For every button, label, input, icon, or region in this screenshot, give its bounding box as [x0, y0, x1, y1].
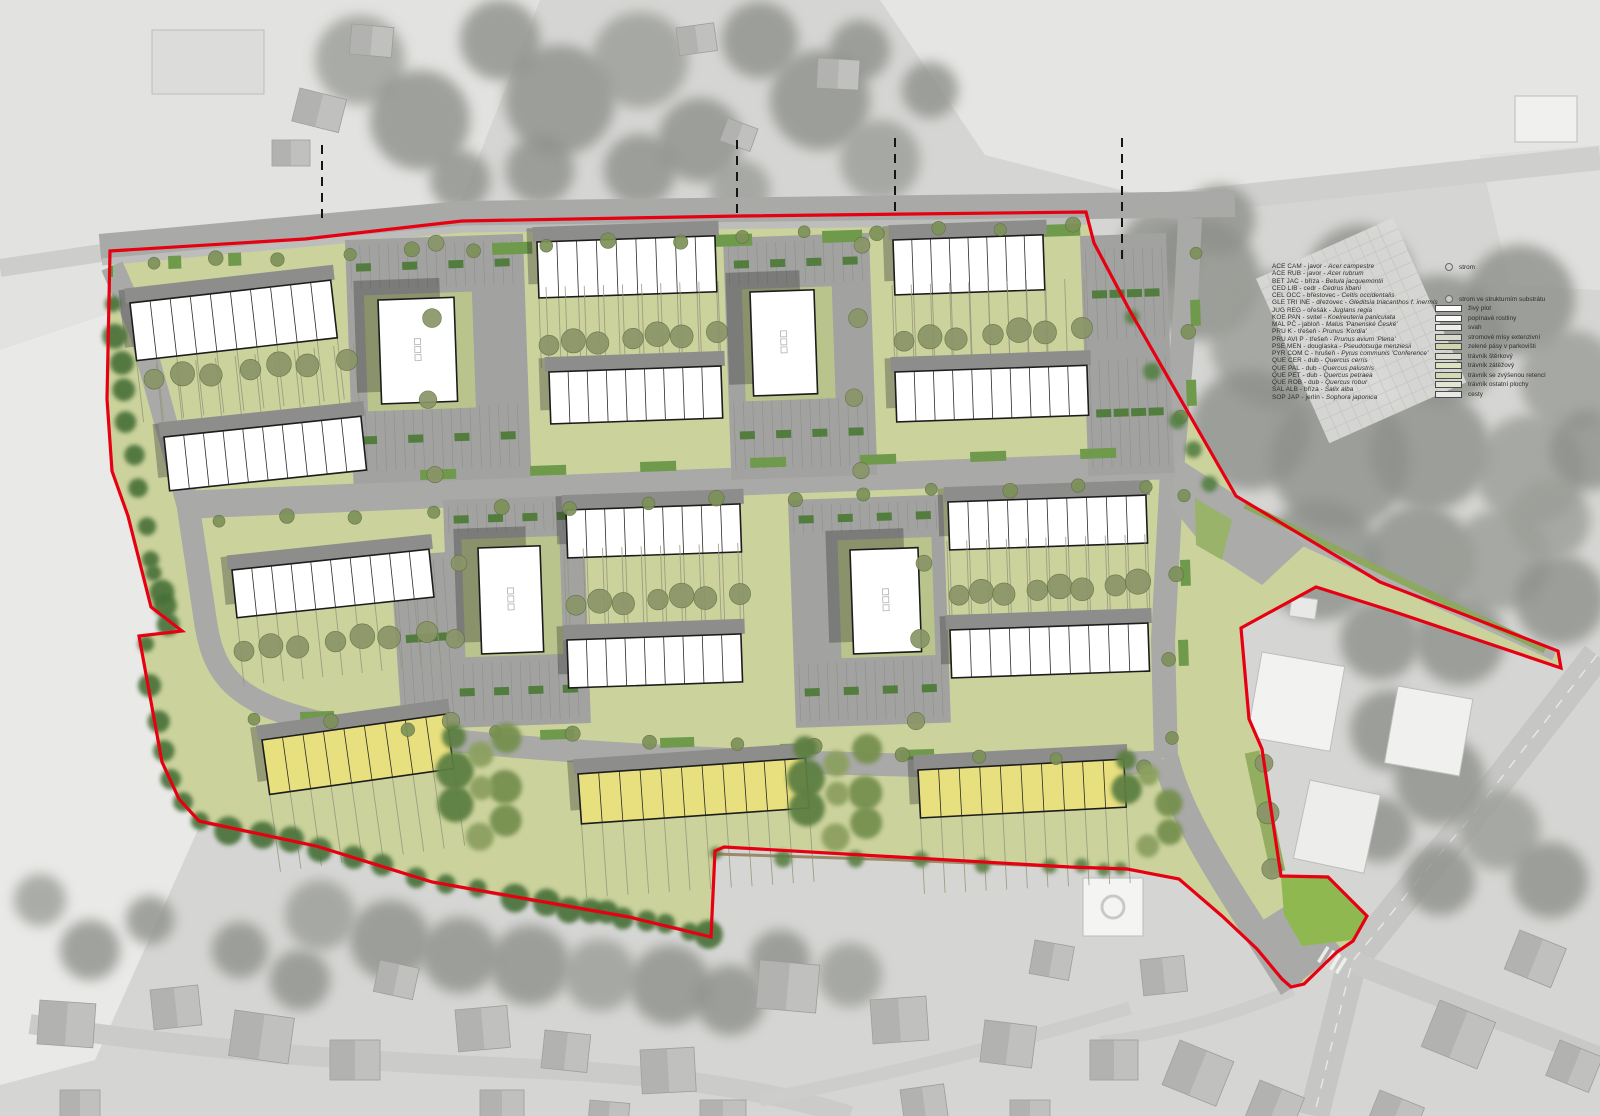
tree	[494, 500, 509, 515]
tree	[669, 583, 694, 608]
hedge-tree	[774, 850, 791, 867]
legend-surface-label: stromové mísy extenzivní	[1468, 334, 1540, 341]
tree	[994, 224, 1006, 236]
tree	[586, 332, 608, 354]
tree	[271, 253, 285, 267]
tree	[325, 631, 346, 652]
legend-plant-row: BET JAC - bříza - Betula jacquemontii	[1272, 278, 1592, 285]
tree	[1071, 317, 1092, 338]
tree	[1166, 732, 1179, 745]
tree	[563, 502, 577, 516]
tree	[1071, 479, 1085, 493]
tree	[427, 466, 443, 482]
tree	[213, 515, 225, 527]
parking-green-bar	[640, 461, 676, 472]
aerial-tree-blob	[285, 880, 355, 950]
tree	[945, 328, 967, 350]
legend-swatch	[1435, 305, 1462, 312]
shrub	[825, 782, 849, 806]
legend-swatch	[1435, 324, 1462, 331]
tree	[540, 239, 553, 252]
parking-court	[1080, 233, 1174, 476]
legend-plant-row: QUE CER - dub - Quercus cerris	[1272, 357, 1592, 364]
hedge-tree	[146, 565, 162, 581]
tree	[642, 497, 655, 510]
tree	[911, 629, 930, 648]
legend-surface-label: trávník se zvýšenou retencí	[1468, 372, 1546, 379]
shrub	[1157, 819, 1183, 845]
legend-surface-row: zelené pásy v parkovišti	[1435, 343, 1536, 350]
legend-plant-row: ACE CAM - javor - Acer campestre	[1272, 263, 1592, 270]
tree	[286, 636, 308, 658]
legend-plant-row: SAL ALB - bříza - Salix alba	[1272, 386, 1592, 393]
aerial-building	[1515, 96, 1577, 142]
aerial-house	[870, 996, 929, 1044]
tree	[144, 369, 164, 389]
legend-surface-row: stromové mísy extenzivní	[1435, 334, 1540, 341]
shrub	[789, 790, 825, 826]
tree	[324, 714, 339, 729]
legend-tree-icon	[1445, 263, 1453, 271]
tree	[296, 354, 319, 377]
tree	[731, 738, 744, 751]
tree	[588, 589, 612, 613]
tree	[248, 713, 260, 725]
aerial-building	[1384, 686, 1472, 776]
building-footprint	[549, 366, 723, 424]
hedge-tree	[1201, 476, 1217, 492]
aerial-building	[152, 30, 264, 94]
legend: ACE CAM - javor - Acer campestreACE RUB …	[1272, 263, 1592, 401]
legend-plant-row: PRU AVI P - třešeň - Prunus avium 'Plena…	[1272, 336, 1592, 343]
hedge-tree	[110, 351, 134, 375]
tree	[1065, 217, 1080, 232]
legend-plant-row: CED LIB - cedr - Cedrus libani	[1272, 285, 1592, 292]
parking-green-bar	[1178, 640, 1189, 666]
tree	[645, 322, 670, 347]
tree	[240, 359, 261, 380]
legend-surface-row: strom	[1435, 263, 1475, 271]
legend-swatch	[1435, 353, 1462, 360]
shrub	[1136, 835, 1159, 858]
legend-plant-list: ACE CAM - javor - Acer campestreACE RUB …	[1272, 263, 1592, 401]
tree	[1003, 483, 1018, 498]
shrub	[850, 807, 882, 839]
tree	[918, 325, 942, 349]
legend-swatch	[1435, 372, 1462, 379]
tree	[1034, 321, 1057, 344]
aerial-tree-blob	[564, 939, 636, 1011]
aerial-house	[700, 1100, 746, 1116]
aerial-house	[816, 58, 860, 90]
aerial-tree-blob	[1510, 480, 1590, 560]
hedge-tree	[112, 378, 135, 401]
aerial-house	[541, 1030, 591, 1073]
tree	[401, 723, 415, 737]
tree	[416, 621, 437, 642]
legend-surface-label: trávník štěrkový	[1468, 353, 1513, 360]
aerial-house	[676, 23, 718, 56]
tree	[674, 235, 688, 249]
tree	[798, 226, 810, 238]
shrub	[824, 751, 850, 777]
legend-tree-icon	[1445, 295, 1453, 303]
tree	[993, 583, 1015, 605]
shrub	[1138, 764, 1160, 786]
shrub	[490, 805, 522, 837]
shrub	[438, 786, 474, 822]
tree	[925, 483, 937, 495]
aerial-tree-blob	[60, 920, 120, 980]
tree	[419, 391, 437, 409]
building-footprint	[537, 236, 717, 298]
hedge-tree	[138, 517, 156, 535]
legend-surface-label: strom	[1459, 264, 1475, 271]
aerial-house	[1090, 1040, 1138, 1080]
shrub	[848, 776, 882, 810]
tree	[932, 221, 946, 235]
legend-plant-row: JUG REG - ořešák - Juglans regia	[1272, 307, 1592, 314]
legend-surface-row: trávník zátěžový	[1435, 362, 1514, 369]
hedge-tree	[1169, 412, 1186, 429]
tree	[857, 488, 870, 501]
tree	[404, 242, 419, 257]
tree	[350, 624, 375, 649]
parking-green-bar	[750, 457, 786, 468]
parking-green-bar	[228, 253, 241, 266]
legend-surface-row: svah	[1435, 324, 1482, 331]
legend-surface-row: živý plot	[1435, 305, 1491, 312]
tree	[973, 750, 986, 763]
tree	[894, 331, 914, 351]
shrub	[1116, 750, 1136, 770]
tree	[200, 364, 222, 386]
aerial-tree-blob	[270, 950, 330, 1010]
tree	[539, 335, 559, 355]
legend-swatch	[1435, 362, 1462, 369]
aerial-tree-blob	[818, 943, 882, 1007]
hedge-tree	[556, 897, 582, 923]
tree	[849, 309, 868, 328]
legend-plant-row: ACE RUB - javor - Acer rubrum	[1272, 270, 1592, 277]
aerial-house	[1010, 1100, 1050, 1116]
tree	[446, 629, 465, 648]
tree	[845, 389, 863, 407]
shrub	[1155, 789, 1183, 817]
parking-green-bar	[168, 256, 181, 269]
hedge-tree	[148, 710, 170, 732]
aerial-house	[756, 960, 820, 1013]
aerial-house	[980, 1020, 1037, 1068]
hedge-tree	[1185, 441, 1202, 458]
hedge-tree	[1143, 363, 1161, 381]
tree	[895, 748, 909, 762]
legend-surface-label: cesty	[1468, 391, 1483, 398]
legend-surface-label: živý plot	[1468, 305, 1491, 312]
tree	[1169, 567, 1184, 582]
tree	[853, 462, 869, 478]
parking-green-bar	[530, 465, 566, 476]
tree	[1027, 580, 1048, 601]
parking-green-bar	[1186, 380, 1197, 406]
legend-surface-row: popínavé rostliny	[1435, 315, 1516, 322]
legend-plant-row: SOP JAP - jerlín - Sophora japonica	[1272, 394, 1592, 401]
legend-plant-row: PSE MEN - douglaska - Pseudotsuga menzie…	[1272, 343, 1592, 350]
tree	[1007, 318, 1032, 343]
legend-surface-row: trávník se zvýšenou retencí	[1435, 372, 1546, 379]
aerial-house	[150, 985, 202, 1030]
hedge-tree	[115, 411, 137, 433]
aerial-house	[900, 1084, 949, 1116]
aerial-tree-blob	[422, 917, 498, 993]
hedge-tree	[124, 445, 144, 465]
tree	[1257, 802, 1279, 824]
legend-plant-row: MAL PČ - jabloň - Malus 'Panenské České'	[1272, 321, 1592, 328]
tree	[1050, 753, 1062, 765]
legend-swatch	[1435, 315, 1462, 322]
legend-surface-label: trávník zátěžový	[1468, 362, 1514, 369]
tree	[869, 226, 884, 241]
tree	[561, 329, 585, 353]
tree	[148, 257, 160, 269]
site-plan-page: ACE CAM - javor - Acer campestreACE RUB …	[0, 0, 1600, 1116]
building-footprint	[567, 634, 743, 688]
parking-green-bar	[492, 242, 532, 255]
aerial-tree-blob	[1512, 842, 1588, 918]
tree	[170, 362, 194, 386]
tree	[428, 235, 444, 251]
tree	[467, 244, 481, 258]
tree	[788, 492, 802, 506]
tree	[907, 712, 925, 730]
shrub	[852, 734, 882, 764]
hedge-tree	[102, 324, 127, 349]
hedge-tree	[1075, 859, 1089, 873]
tree	[336, 349, 357, 370]
masterplan-canvas	[0, 0, 1600, 1116]
shrub	[822, 823, 850, 851]
tree	[706, 321, 727, 342]
tree	[612, 592, 634, 614]
parking-green-bar	[1080, 448, 1116, 459]
aerial-house	[1140, 955, 1188, 995]
tree	[1190, 247, 1202, 259]
tree	[267, 352, 292, 377]
legend-surface-label: strom ve strukturním substrátu	[1459, 296, 1545, 303]
tree	[565, 726, 580, 741]
tree	[1162, 652, 1176, 666]
tree	[600, 233, 616, 249]
shrub	[469, 776, 493, 800]
legend-plant-row: KOE PAN - svitel - Koelreuteria panicula…	[1272, 314, 1592, 321]
tree	[969, 579, 993, 603]
tree	[709, 490, 725, 506]
tree	[428, 506, 440, 518]
legend-swatch	[1435, 343, 1462, 350]
aerial-house	[229, 1010, 295, 1064]
tree	[1140, 481, 1152, 493]
building-footprint	[566, 504, 742, 558]
aerial-house	[455, 1005, 510, 1051]
tree	[451, 555, 467, 571]
aerial-tree-blob	[604, 134, 676, 206]
tree	[280, 509, 295, 524]
legend-plant-row: PRU K - třešeň - Prunus 'Kordia'	[1272, 328, 1592, 335]
tree	[378, 626, 401, 649]
aerial-building	[1083, 878, 1143, 936]
tree	[1125, 569, 1150, 594]
legend-plant-row: QUE ROB - dub - Quercus robur	[1272, 379, 1592, 386]
tree	[623, 328, 644, 349]
tree	[348, 511, 362, 525]
aerial-building	[1247, 652, 1345, 751]
hedge-tree	[142, 551, 159, 568]
legend-swatch	[1435, 381, 1462, 388]
legend-surface-row: strom ve strukturním substrátu	[1435, 295, 1545, 303]
tree	[736, 230, 749, 243]
parking-green-bar	[660, 737, 694, 748]
tree	[916, 555, 932, 571]
tree	[1105, 575, 1126, 596]
tree	[648, 589, 669, 610]
parking-green-bar	[1190, 300, 1201, 326]
aerial-tree-blob	[506, 136, 574, 204]
tree	[643, 735, 657, 749]
aerial-tree-blob	[902, 62, 958, 118]
tree	[423, 309, 442, 328]
tree	[983, 324, 1004, 345]
legend-surface-label: zelené pásy v parkovišti	[1468, 343, 1536, 350]
aerial-house	[480, 1090, 524, 1116]
legend-swatch	[1435, 391, 1462, 398]
parking-green-bar	[860, 454, 896, 465]
shrub	[793, 736, 817, 760]
legend-surface-row: trávník štěrkový	[1435, 353, 1513, 360]
tree	[1071, 578, 1094, 601]
legend-surface-label: trávník ostatní plochy	[1468, 381, 1528, 388]
tree	[1181, 324, 1196, 339]
aerial-tree-blob	[592, 12, 688, 108]
tree	[694, 587, 717, 610]
aerial-house	[1029, 940, 1074, 980]
tree	[1047, 574, 1072, 599]
legend-plant-row: PYR COM C - hrušeň - Pyrus communis 'Con…	[1272, 350, 1592, 357]
shrub	[468, 741, 494, 767]
legend-surface-label: svah	[1468, 324, 1482, 331]
legend-surface-label: popínavé rostliny	[1468, 315, 1516, 322]
tree	[208, 251, 223, 266]
aerial-house	[272, 140, 310, 166]
aerial-tree-blob	[212, 922, 268, 978]
tree	[1178, 489, 1190, 501]
shrub	[491, 723, 521, 753]
aerial-tree-blob	[126, 896, 174, 944]
hedge-tree	[128, 478, 147, 497]
tree	[259, 634, 283, 658]
tree	[566, 595, 586, 615]
aerial-house	[640, 1047, 696, 1094]
tree	[344, 248, 356, 260]
shrub	[1111, 774, 1142, 805]
aerial-tree-blob	[1405, 845, 1475, 915]
tree	[729, 583, 750, 604]
aerial-house	[330, 1040, 380, 1080]
tree	[949, 585, 969, 605]
aerial-tree-blob	[14, 874, 66, 926]
aerial-house	[60, 1090, 100, 1116]
legend-surface-row: cesty	[1435, 391, 1483, 398]
legend-swatch	[1435, 334, 1462, 341]
aerial-tree-blob	[840, 120, 920, 200]
parking-green-bar	[970, 451, 1006, 462]
shrub	[442, 725, 466, 749]
shrub	[466, 823, 494, 851]
aerial-tree-blob	[490, 925, 570, 1005]
tree	[670, 325, 693, 348]
aerial-house	[37, 1000, 96, 1048]
legend-surface-row: trávník ostatní plochy	[1435, 381, 1528, 388]
hedge-tree	[153, 740, 174, 761]
tree	[854, 237, 870, 253]
aerial-house	[349, 24, 393, 58]
tree	[234, 641, 254, 661]
